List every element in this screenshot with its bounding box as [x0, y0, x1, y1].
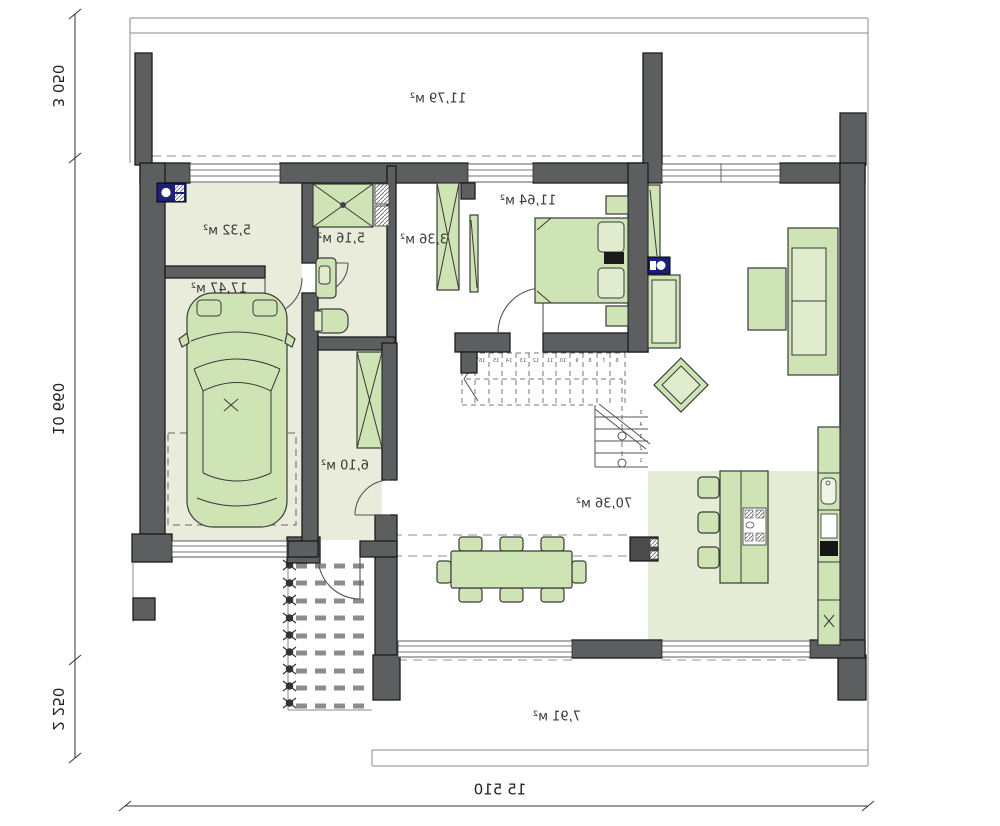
dim-left-bottom: 2 250	[49, 688, 67, 731]
svg-text:3: 3	[639, 434, 642, 440]
toilet	[314, 309, 348, 333]
fireplace	[630, 537, 658, 561]
svg-text:13: 13	[520, 358, 526, 364]
svg-text:5: 5	[639, 410, 642, 416]
window-kitchen	[662, 641, 810, 657]
shower	[313, 184, 373, 227]
kitchen-island	[720, 471, 768, 583]
svg-text:7: 7	[602, 358, 605, 364]
bar-stools	[698, 477, 719, 568]
sofa	[788, 228, 838, 375]
bed	[535, 218, 628, 303]
dim-left-middle: 10 660	[49, 383, 67, 436]
window-utility	[190, 164, 280, 182]
label-bedroom: 11,64 м²	[500, 194, 556, 209]
label-balcony: 11,79 м²	[410, 92, 466, 107]
tv-panel	[648, 185, 660, 261]
wardrobe-hall	[357, 352, 382, 448]
dining-table	[451, 551, 572, 588]
window-dining	[398, 641, 572, 657]
svg-text:15: 15	[493, 358, 499, 364]
svg-text:4: 4	[639, 422, 642, 428]
label-living: 70,36 м²	[576, 497, 632, 512]
svg-text:12: 12	[533, 358, 539, 364]
svg-text:16: 16	[479, 358, 485, 364]
svg-text:8: 8	[588, 358, 591, 364]
floor-plan: 17 16 15 14 13 12 11 10 9 8 7 6 5 4 3 2 …	[0, 0, 1000, 822]
window-living-top	[662, 164, 780, 182]
boiler-icon	[157, 183, 186, 202]
dining-set	[437, 537, 586, 602]
floor-plan-page: 17 16 15 14 13 12 11 10 9 8 7 6 5 4 3 2 …	[0, 0, 1000, 822]
label-utility: 5,32 м²	[203, 224, 251, 239]
dim-left-top: 3 050	[49, 65, 67, 108]
window-bedroom	[468, 164, 533, 182]
dim-bottom: 15 510	[474, 780, 527, 798]
svg-text:9: 9	[575, 358, 578, 364]
svg-text:1: 1	[639, 458, 642, 464]
kitchen-counter	[818, 427, 840, 645]
closet-sliding-panel	[470, 215, 478, 292]
nightstand-top	[606, 196, 628, 214]
dresser	[648, 275, 680, 348]
oven	[820, 514, 838, 556]
kitchen-sink	[821, 478, 836, 504]
svg-text:2: 2	[639, 446, 642, 452]
nightstand-bottom	[606, 306, 628, 326]
tv-icon	[648, 257, 670, 274]
sink	[316, 258, 336, 298]
garage-door	[172, 541, 287, 557]
apron-post	[133, 598, 155, 620]
svg-text:11: 11	[547, 358, 553, 364]
svg-text:6: 6	[615, 358, 618, 364]
label-garage: 17,47 м²	[191, 282, 247, 297]
label-closet: 3,36 м²	[400, 233, 448, 248]
coffee-table	[748, 268, 786, 330]
svg-text:14: 14	[506, 358, 512, 364]
label-hall: 6,10 м²	[321, 459, 369, 474]
car	[179, 293, 295, 527]
svg-text:10: 10	[560, 358, 566, 364]
label-terrace: 7,91 м²	[533, 710, 581, 725]
label-bathroom: 5,16 м²	[317, 232, 365, 247]
